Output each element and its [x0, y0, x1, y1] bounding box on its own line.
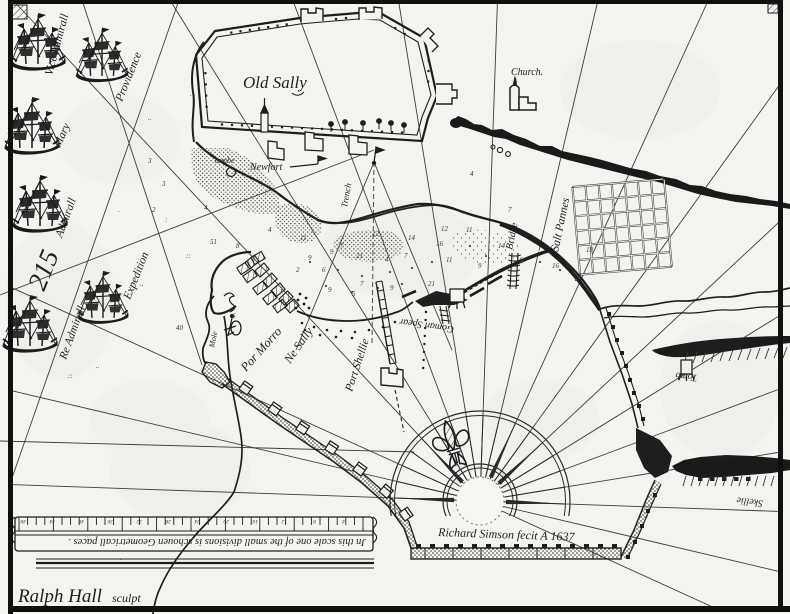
svg-text:9: 9 [328, 286, 332, 294]
svg-text:::: :: [186, 252, 191, 260]
svg-text:Church.: Church. [511, 67, 543, 78]
svg-text:2: 2 [296, 266, 300, 274]
svg-text:..: .. [96, 362, 100, 370]
svg-text:4: 4 [204, 204, 208, 212]
svg-text:4: 4 [342, 518, 345, 525]
svg-text:51: 51 [210, 238, 217, 246]
svg-text:40: 40 [78, 518, 84, 525]
svg-text:9: 9 [308, 254, 312, 262]
svg-text:14: 14 [498, 242, 506, 250]
svg-text:7: 7 [508, 206, 512, 214]
svg-text:44: 44 [49, 518, 55, 525]
svg-text:.: . [120, 554, 122, 562]
svg-text:11: 11 [300, 234, 306, 242]
svg-text:20: 20 [223, 518, 229, 524]
svg-text:Newfort: Newfort [249, 162, 282, 173]
svg-text:::: :: [84, 534, 89, 542]
svg-text:36: 36 [107, 518, 114, 524]
svg-text:2: 2 [152, 206, 156, 214]
svg-text:24: 24 [194, 518, 200, 525]
svg-text:16: 16 [516, 256, 524, 264]
svg-text:8: 8 [236, 242, 240, 250]
svg-text::: : [165, 216, 167, 224]
svg-text:9: 9 [478, 262, 482, 270]
svg-text:48: 48 [20, 518, 26, 525]
svg-text:8: 8 [313, 518, 316, 524]
svg-text:6: 6 [232, 312, 236, 320]
svg-text:..: .. [140, 280, 144, 288]
svg-text:18: 18 [586, 246, 594, 254]
svg-text:16: 16 [252, 518, 258, 524]
svg-text:Jn this scale one of the small: Jn this scale one of the small divisions… [68, 536, 366, 547]
svg-text:3: 3 [161, 180, 166, 188]
svg-text:.: . [190, 90, 192, 98]
svg-text:16: 16 [552, 262, 560, 270]
svg-text:Old Sally: Old Sally [243, 73, 307, 92]
svg-text:sculpt: sculpt [112, 591, 141, 605]
svg-text:tombe: tombe [215, 156, 235, 165]
svg-text:..: .. [214, 152, 218, 160]
svg-text:4: 4 [470, 170, 474, 178]
svg-text:4: 4 [268, 226, 272, 234]
svg-text:32: 32 [136, 518, 143, 524]
svg-text:40: 40 [176, 324, 184, 332]
svg-text:12: 12 [281, 518, 287, 524]
svg-text:Ralph Hall: Ralph Hall [17, 586, 102, 607]
svg-text:.: . [118, 206, 120, 214]
